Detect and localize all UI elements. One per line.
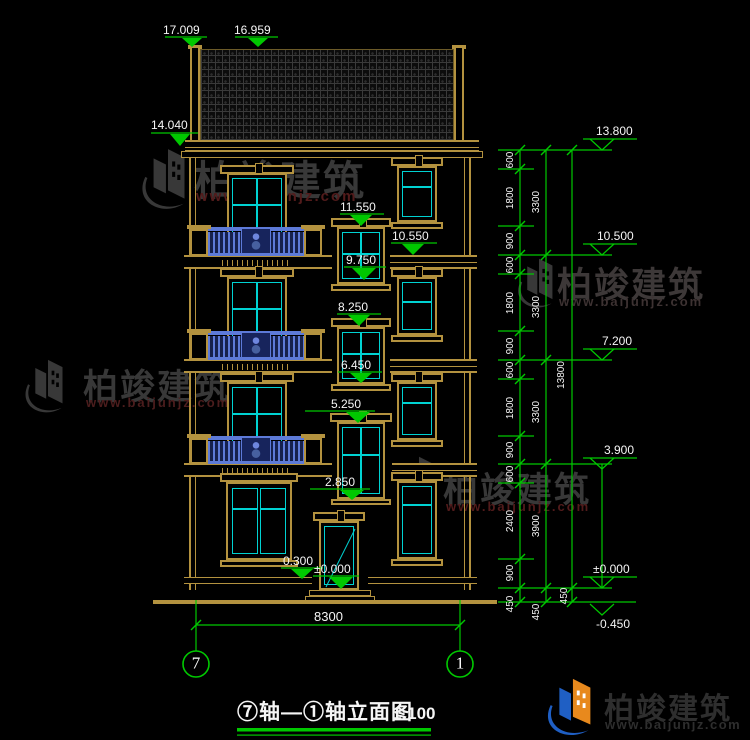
level-text: 2.850 bbox=[325, 476, 355, 489]
elevation-drawing-canvas: 柏竣建筑 www.baijunjz.com 柏竣建筑 www.baijunjz.… bbox=[0, 0, 750, 740]
overall-width-dim: 8300 bbox=[314, 610, 343, 624]
dim-label: 900 bbox=[506, 565, 516, 582]
level-text: 6.450 bbox=[341, 359, 371, 372]
dim-label: 450 bbox=[506, 596, 516, 613]
level-marker-triangles bbox=[170, 38, 424, 589]
dim-label: 1800 bbox=[506, 397, 516, 419]
level-text: 14.040 bbox=[151, 119, 188, 132]
right-dimension-chains bbox=[498, 139, 637, 615]
dim-label: 450 bbox=[532, 604, 542, 621]
level-text: ±0.000 bbox=[314, 563, 351, 576]
dim-label: 3300 bbox=[532, 296, 542, 318]
dim-label: 600 bbox=[506, 257, 516, 274]
dim-label: 900 bbox=[506, 233, 516, 250]
dim-label: 3900 bbox=[532, 515, 542, 537]
dimension-linework bbox=[0, 0, 750, 740]
dim-label: 900 bbox=[506, 442, 516, 459]
level-text: 0.300 bbox=[283, 555, 313, 568]
dim-label: 3300 bbox=[532, 191, 542, 213]
level-text: 10.500 bbox=[597, 230, 634, 243]
level-text: 5.250 bbox=[331, 398, 361, 411]
level-text: 7.200 bbox=[602, 335, 632, 348]
dim-label: 600 bbox=[506, 362, 516, 379]
company-logo-url: www.baijunjz.com bbox=[605, 717, 741, 732]
level-text: 9.750 bbox=[346, 254, 376, 267]
dim-label: 1800 bbox=[506, 292, 516, 314]
level-marker-lines bbox=[151, 37, 437, 576]
dim-label: 1800 bbox=[506, 187, 516, 209]
dim-label: 600 bbox=[506, 152, 516, 169]
dim-label: 450 bbox=[560, 588, 570, 605]
level-text: 13.800 bbox=[596, 125, 633, 138]
dim-label: 600 bbox=[506, 466, 516, 483]
axis-bubble-1: 1 bbox=[456, 654, 465, 674]
axis-bubble-7: 7 bbox=[192, 654, 201, 674]
dim-label: 900 bbox=[506, 338, 516, 355]
level-text: 3.900 bbox=[604, 444, 634, 457]
level-text: 10.550 bbox=[392, 230, 429, 243]
level-text: 17.009 bbox=[163, 24, 200, 37]
dimension-slash-ticks bbox=[191, 145, 577, 630]
drawing-scale: 1:100 bbox=[392, 705, 435, 724]
dim-label: 3300 bbox=[532, 401, 542, 423]
title-underline bbox=[237, 728, 431, 736]
company-logo-icon bbox=[542, 676, 600, 738]
level-text: 8.250 bbox=[338, 301, 368, 314]
level-text: -0.450 bbox=[596, 618, 630, 631]
dim-label: 13800 bbox=[557, 361, 567, 389]
dim-label: 2400 bbox=[506, 510, 516, 532]
level-text: 16.959 bbox=[234, 24, 271, 37]
drawing-title: ⑦轴—①轴立面图 bbox=[237, 701, 413, 724]
level-text: 11.550 bbox=[340, 201, 376, 214]
level-text: ±0.000 bbox=[593, 563, 630, 576]
